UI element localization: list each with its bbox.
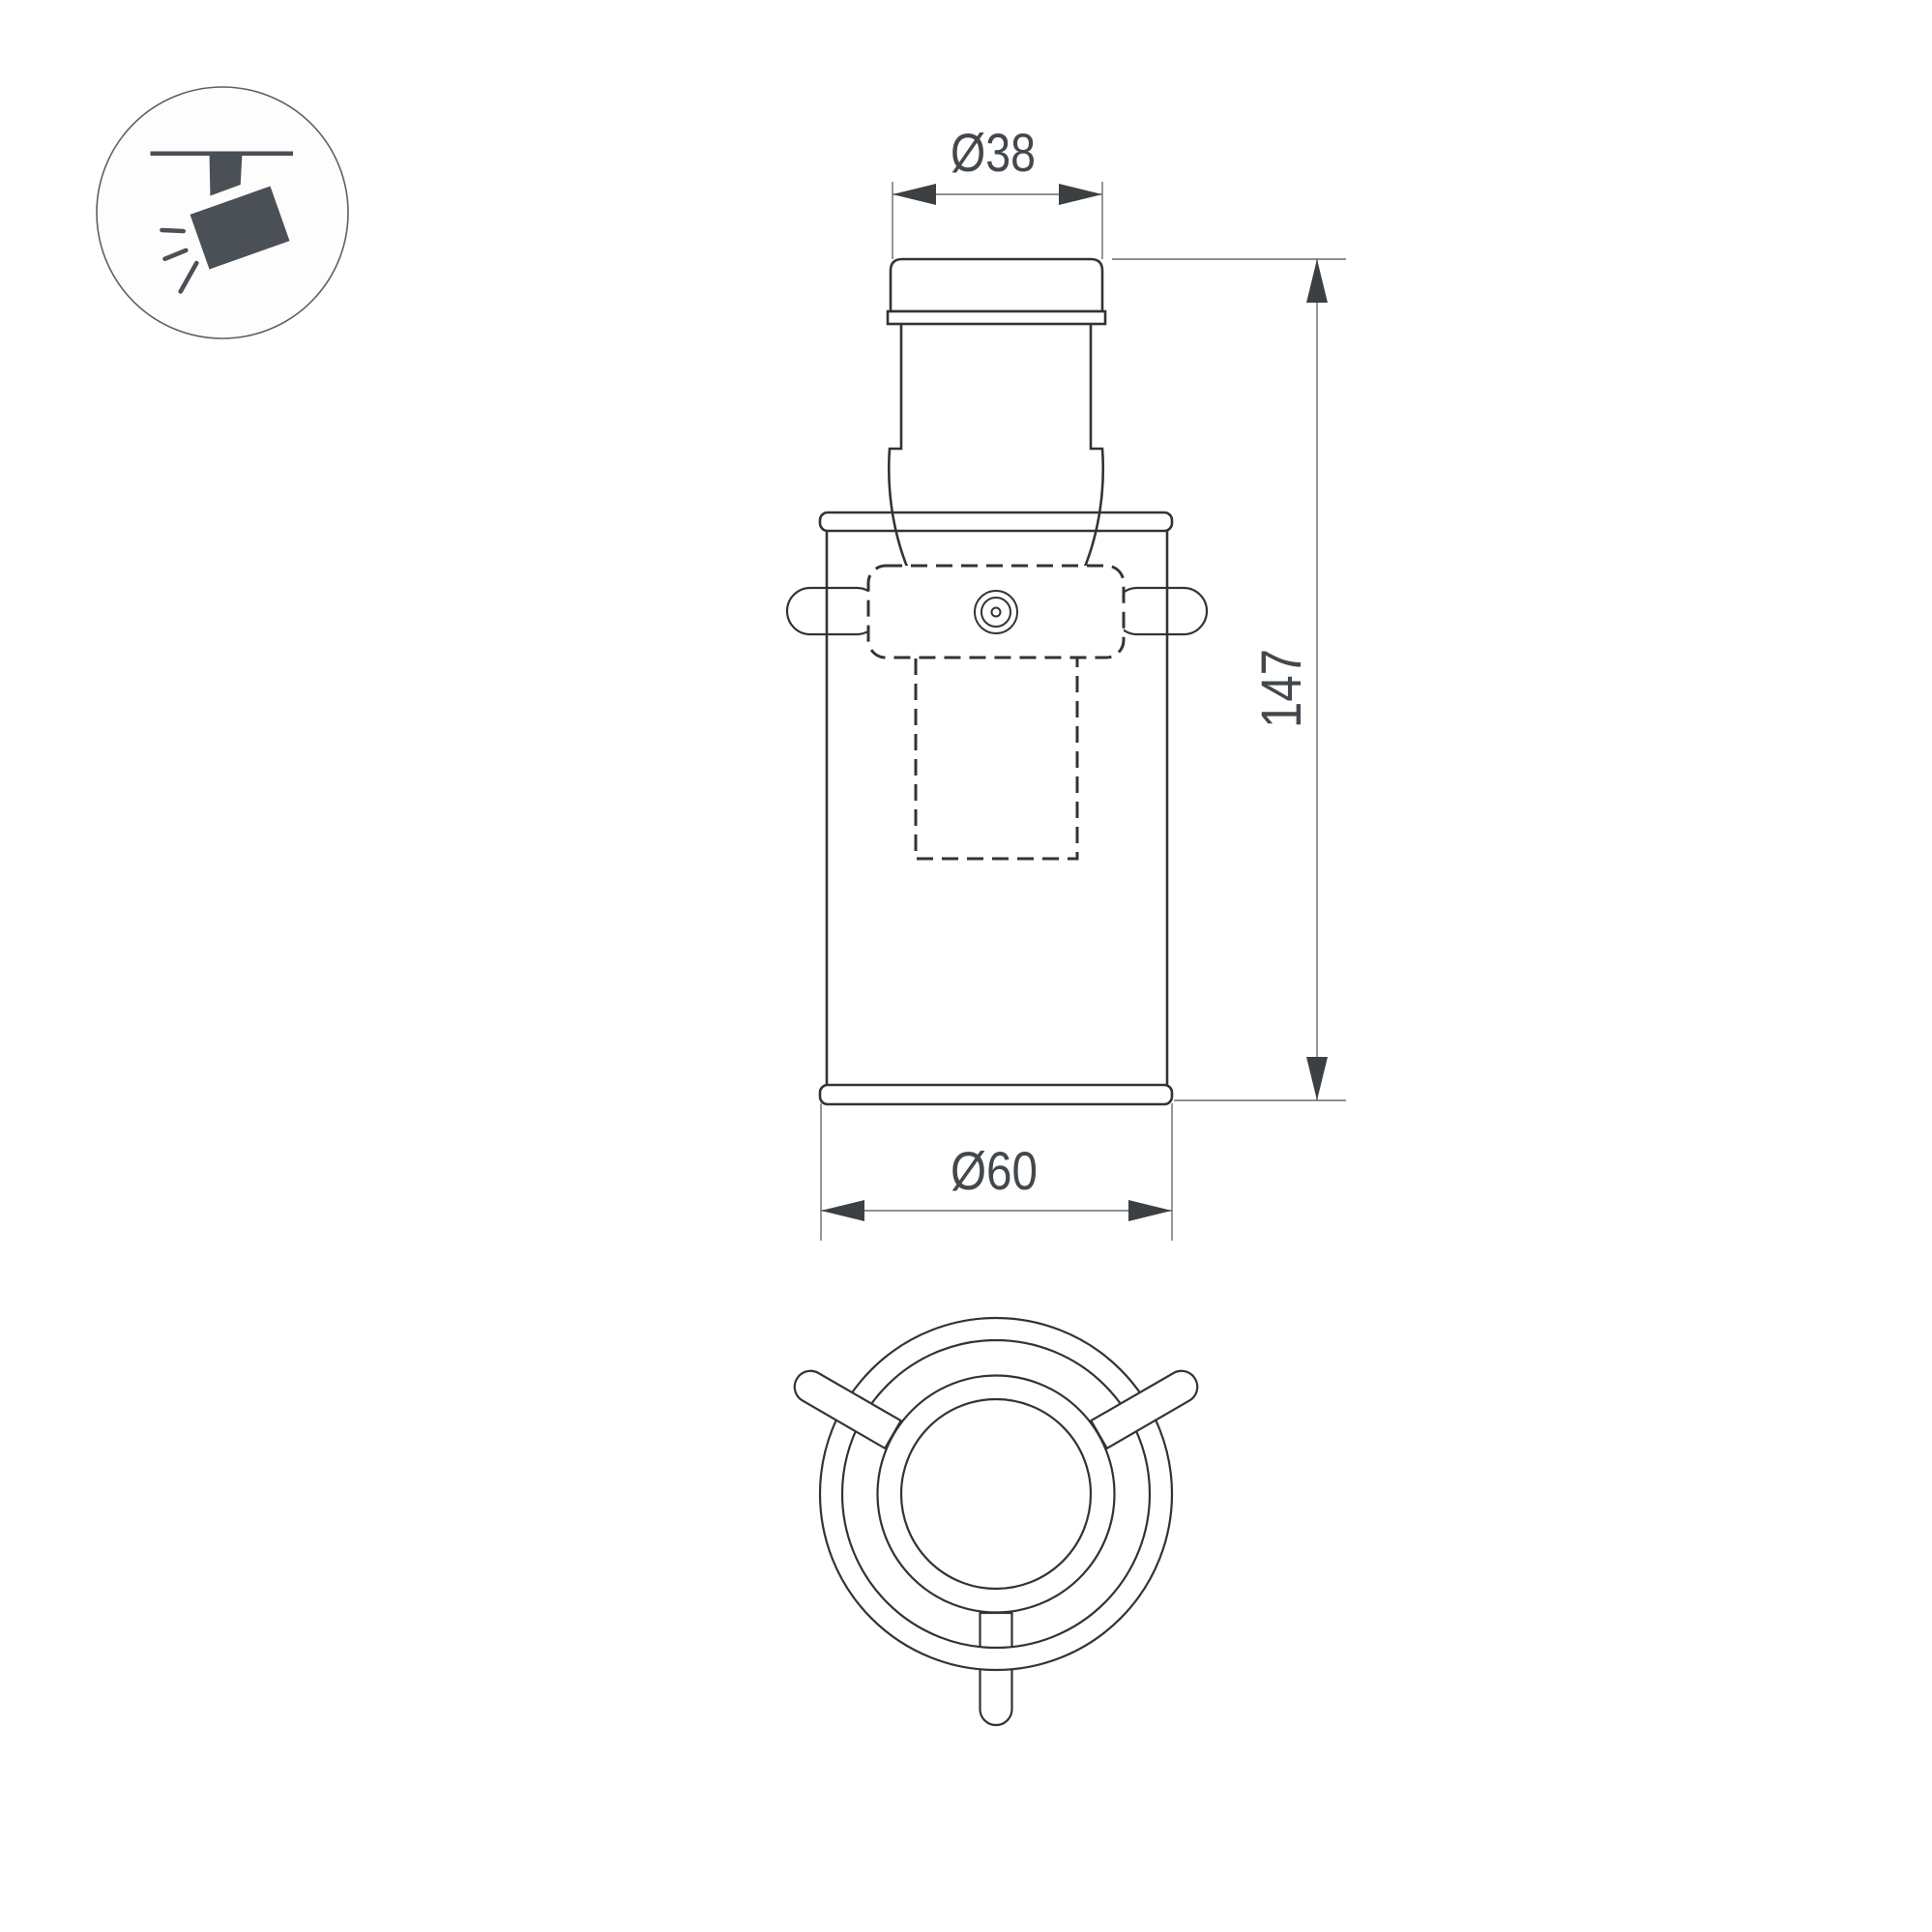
svg-text:Ø60: Ø60 bbox=[951, 1140, 1038, 1201]
svg-text:147: 147 bbox=[1250, 649, 1313, 728]
svg-text:Ø38: Ø38 bbox=[951, 122, 1036, 183]
